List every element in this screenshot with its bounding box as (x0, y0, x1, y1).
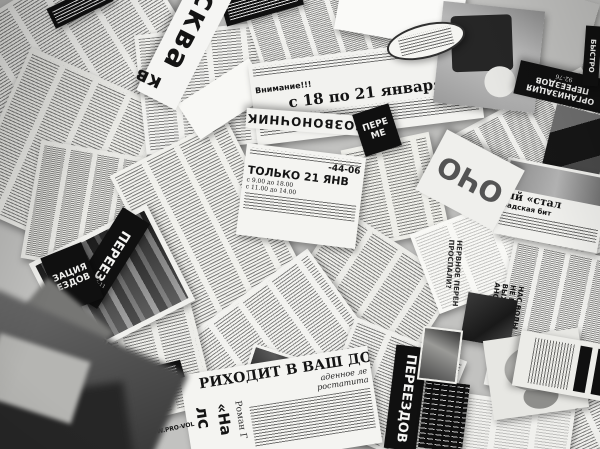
masthead-kv-text: кв (131, 64, 165, 97)
newspaper-collage-photo: осква кв Внимание!!! с 18 по 21 января П… (0, 0, 600, 449)
pereezdov-vertical-text: ПЕРЕЕЗДОВ (393, 353, 419, 443)
bystro-text: БЫСТРО (587, 39, 597, 73)
text-lines (398, 26, 454, 56)
mini-black-label (591, 349, 600, 396)
scrap-only21-ad: -44-06 ТОЛЬКО 21 ЯНВ с 9.00 до 18.00 с 1… (236, 143, 366, 249)
text-lines (528, 338, 575, 390)
photo-fragment (417, 326, 463, 384)
scrap-bystro: БЫСТРО (582, 26, 600, 87)
photo-dark-shape (451, 14, 514, 72)
phone-grid-box (418, 380, 470, 449)
mini-black-label (573, 346, 593, 393)
photo-light-shape (483, 65, 517, 99)
ocho-text: ОЧО (431, 149, 509, 211)
